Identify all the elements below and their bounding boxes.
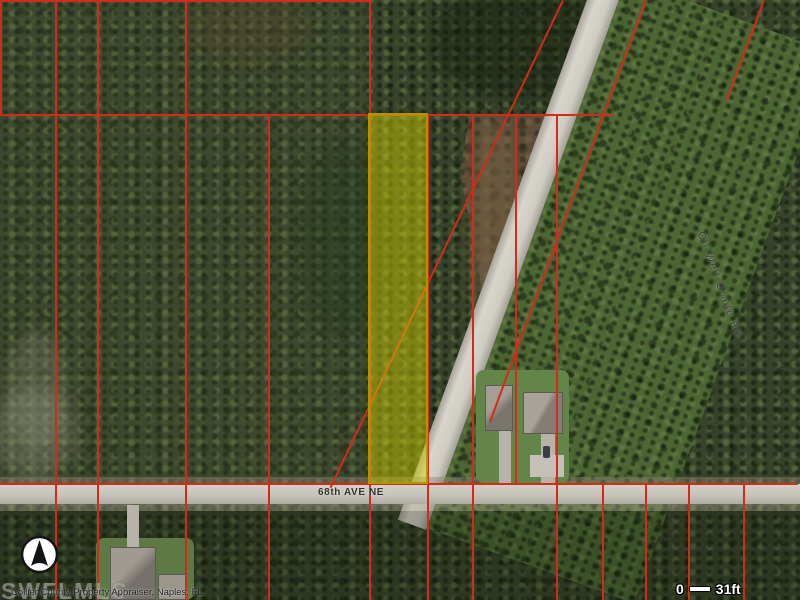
road-68th-ave [0, 484, 800, 504]
parcel-boundary-line [645, 483, 647, 600]
parked-car [543, 446, 550, 458]
parcel-boundary-line [0, 114, 613, 116]
driveway-pad [530, 455, 564, 477]
parcel-boundary-line [743, 483, 745, 600]
parcel-boundary-line [556, 114, 558, 600]
parcel-boundary-line [97, 0, 99, 600]
road-shoulder [0, 503, 800, 511]
road-label-68th-ave: 68th AVE NE [318, 487, 384, 498]
parcel-boundary-line [515, 114, 517, 483]
north-arrow-compass [20, 535, 59, 574]
scale-bar: 0 31ft [676, 581, 741, 597]
parcel-boundary-line [602, 483, 604, 600]
aerial-map[interactable]: 68th AVE NE Oil Well Grade RD 0 31ft SWF… [0, 0, 800, 600]
scale-bar-segment [689, 586, 711, 592]
scale-start-label: 0 [676, 581, 684, 597]
attribution-text: Collier County Property Appraiser, Naple… [11, 587, 205, 598]
highlighted-parcel[interactable] [368, 113, 428, 484]
driveway [127, 505, 139, 553]
scale-end-label: 31ft [716, 581, 741, 597]
north-arrow-icon [20, 535, 59, 574]
parcel-boundary-line [268, 114, 270, 600]
parcel-boundary-line [0, 0, 2, 114]
parcel-boundary-line [185, 0, 187, 600]
parcel-boundary-line [55, 0, 57, 600]
driveway [499, 428, 511, 484]
